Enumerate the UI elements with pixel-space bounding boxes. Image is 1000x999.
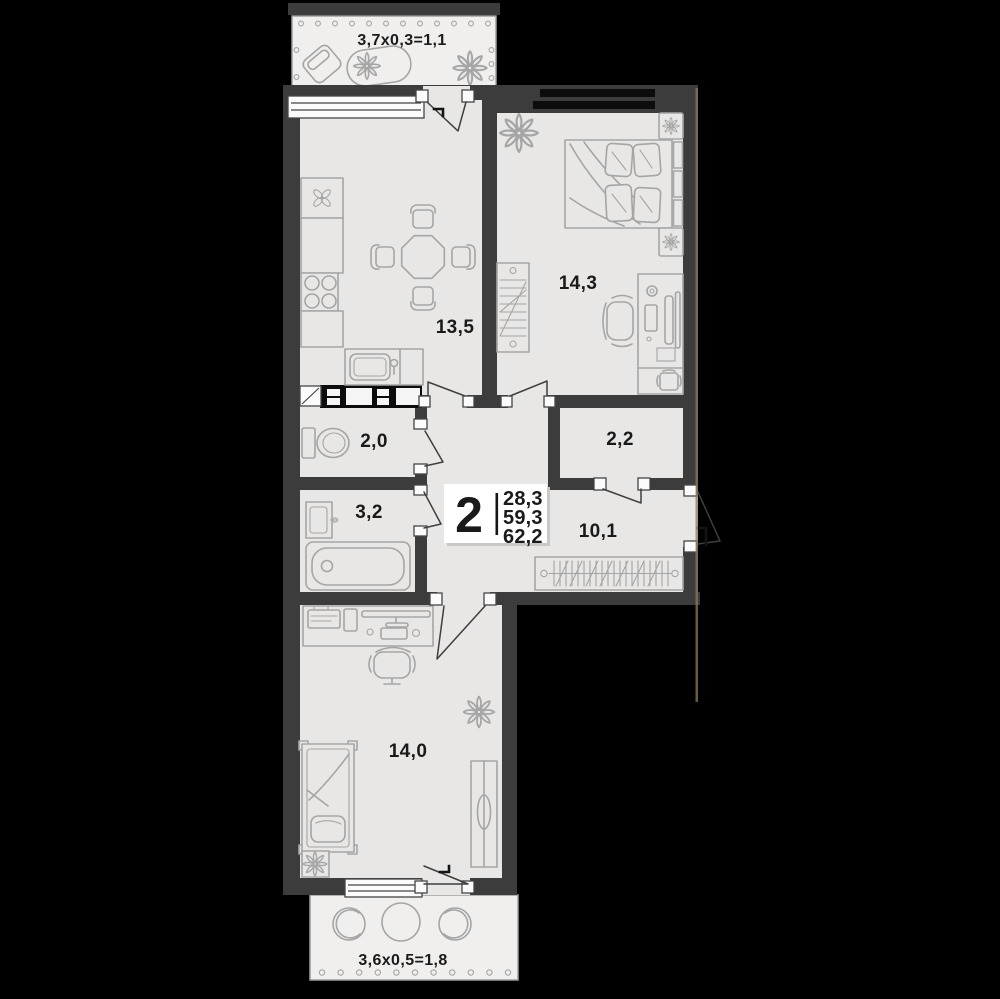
desk-icon — [303, 606, 433, 646]
vent-shaft-icon — [300, 385, 422, 408]
balcony-top: 3,7x0,3=1,1 — [288, 3, 500, 90]
toilet-icon — [302, 428, 349, 458]
pillow-icon — [311, 816, 345, 842]
stove-icon — [301, 273, 338, 311]
balcony-bottom-label: 3,6x0,5=1,8 — [358, 952, 447, 969]
balcony-bottom: 3,6x0,5=1,8 — [310, 895, 518, 980]
double-bed-icon — [565, 140, 683, 228]
bedroom2-window-icon — [345, 879, 422, 897]
balcony-chair-icon — [439, 908, 471, 940]
storage-area-label: 2,2 — [606, 429, 634, 450]
hallway-area-label: 10,1 — [579, 521, 618, 542]
wall-accent-edge — [696, 88, 699, 702]
wc-area-label: 2,0 — [360, 431, 388, 452]
kitchen-window-icon — [288, 96, 424, 118]
nightstand-icon — [659, 113, 683, 139]
area-total: 62,2 — [503, 526, 543, 548]
radiator-icon — [497, 263, 529, 352]
monitor-icon — [665, 296, 673, 344]
bedroom-area-label: 14,3 — [559, 273, 598, 294]
balcony-top-label: 3,7x0,3=1,1 — [357, 32, 446, 49]
room-storage: 2,2 — [606, 429, 634, 450]
bedroom2-area-label: 14,0 — [389, 741, 428, 762]
kitchen-area-label: 13,5 — [436, 317, 475, 338]
balcony-chair-icon — [333, 908, 365, 940]
kitchen-sink-icon — [345, 349, 423, 385]
floor-plan: 3,7x0,3=1,1 3,6x0,5=1,8 — [0, 0, 1000, 999]
hall-wardrobe-icon — [535, 557, 683, 590]
kitchen-counter-icon — [301, 311, 343, 347]
kitchen-cabinet-icon — [301, 218, 343, 273]
nightstand-icon — [659, 228, 683, 256]
single-bed-icon — [299, 741, 357, 854]
dining-table-icon — [402, 236, 445, 279]
plant-stand-icon — [302, 851, 329, 877]
floor-plan-page: 3,7x0,3=1,1 3,6x0,5=1,8 — [0, 0, 1000, 999]
info-box: 2 28,3 59,3 62,2 — [444, 484, 550, 548]
bathroom-area-label: 3,2 — [355, 502, 383, 523]
info-box-divider — [496, 493, 499, 535]
balcony-table-icon — [382, 903, 420, 941]
bathtub-icon — [306, 542, 410, 590]
room-count: 2 — [455, 487, 483, 543]
small-chair-icon — [657, 370, 681, 390]
wardrobe-icon — [471, 761, 497, 867]
